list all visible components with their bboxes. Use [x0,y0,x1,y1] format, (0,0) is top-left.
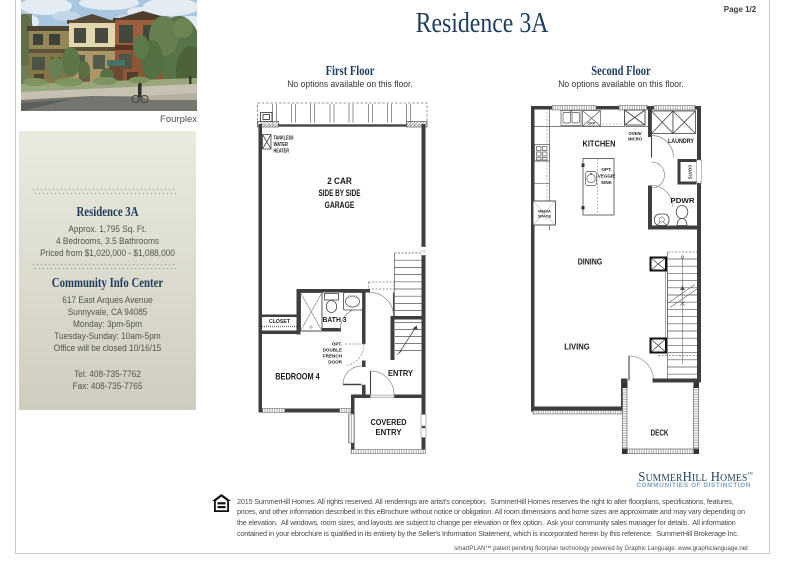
svg-text:WATER: WATER [274,142,289,148]
svg-text:DOUBLE: DOUBLE [323,348,342,353]
svg-text:LAUNDRY: LAUNDRY [668,138,695,145]
svg-text:DECK: DECK [651,429,669,438]
svg-text:BEDROOM 4: BEDROOM 4 [275,372,320,382]
svg-text:HEATER: HEATER [274,149,290,155]
svg-text:FRENCH: FRENCH [323,354,343,359]
svg-text:SPACE: SPACE [538,214,552,219]
svg-text:OPT.: OPT. [332,342,342,347]
svg-text:OVEN/: OVEN/ [628,131,642,136]
svg-text:TANKLESS: TANKLESS [274,136,294,142]
svg-text:CLOSET: CLOSET [269,319,291,325]
svg-text:CKP: CKP [587,122,595,126]
svg-text:SIDE BY SIDE: SIDE BY SIDE [319,188,361,198]
svg-text:MICRO: MICRO [628,137,643,142]
svg-text:COVERED: COVERED [371,418,407,427]
svg-text:GARAGE: GARAGE [325,200,355,210]
svg-text:VEGGIE: VEGGIE [598,174,616,179]
svg-text:COATS: COATS [688,165,693,180]
svg-text:DINING: DINING [578,257,603,267]
svg-text:ENTRY: ENTRY [376,428,403,437]
svg-text:DOOR: DOOR [328,360,342,365]
svg-text:KITCHEN: KITCHEN [583,139,616,149]
svg-text:OPT.: OPT. [601,167,611,172]
svg-text:PDWR: PDWR [671,196,696,205]
svg-text:BATH 3: BATH 3 [323,315,347,324]
svg-text:ENTRY: ENTRY [388,369,414,378]
svg-text:2 CAR: 2 CAR [327,176,352,186]
svg-text:LIVING: LIVING [564,342,590,352]
svg-text:SINK: SINK [601,180,613,185]
